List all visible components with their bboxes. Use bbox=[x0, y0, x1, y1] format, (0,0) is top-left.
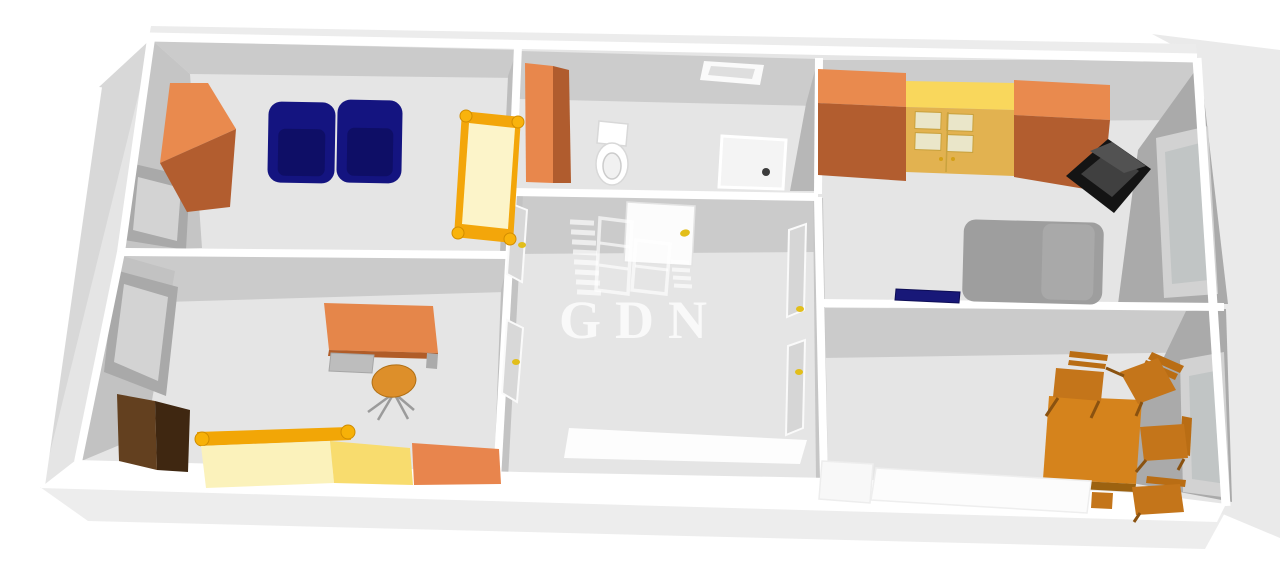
bath-cabinet-dark bbox=[553, 66, 571, 183]
wardrobe-glass-panel-2 bbox=[947, 114, 974, 132]
bedroom-bed-highlight bbox=[1041, 223, 1095, 300]
living-armchair-2-seat bbox=[347, 128, 394, 177]
wm-text: GDN bbox=[559, 290, 721, 350]
bedroom-wardrobe-yellow-top bbox=[906, 81, 1014, 110]
shower-tray bbox=[719, 136, 786, 189]
hall-left-door-1-handle bbox=[518, 242, 526, 248]
hall-left-door-2-handle bbox=[512, 359, 520, 365]
wall-cap-divider-bedroom-dining bbox=[820, 303, 1224, 307]
dining-table-top bbox=[1043, 396, 1142, 484]
living-bed-post-1 bbox=[460, 110, 472, 122]
dining-chair-east2-seat bbox=[1140, 424, 1188, 461]
toilet-tank bbox=[597, 121, 628, 146]
bedroom-wardrobe-right-light bbox=[1014, 80, 1110, 120]
kitchen-counter-cube bbox=[819, 461, 873, 503]
wall-cap-hall-north bbox=[513, 192, 818, 197]
wall-cap-divider-living-kid bbox=[121, 252, 511, 255]
floorplan-3d-render: GDN GDN bbox=[0, 0, 1280, 578]
kid-bed-mattress bbox=[201, 441, 334, 488]
wardrobe-glass-panel-1 bbox=[915, 112, 942, 130]
dining-chair-north-seat bbox=[1053, 368, 1104, 401]
wardrobe-glass-panel-4 bbox=[947, 135, 974, 153]
dining-chair-south-seat bbox=[1132, 484, 1184, 515]
dining-stool bbox=[1091, 492, 1113, 509]
kid-bed-post-left bbox=[195, 432, 209, 446]
dining-north-wall-face bbox=[822, 308, 1224, 358]
wardrobe-handle-1 bbox=[939, 157, 943, 161]
living-armchair-1-seat bbox=[278, 129, 326, 177]
shower-drain bbox=[762, 168, 770, 176]
hall-right-door-1 bbox=[787, 224, 806, 317]
bedroom-wardrobe-left-light bbox=[818, 69, 906, 107]
kid-bed-blanket bbox=[330, 441, 413, 485]
kid-cabinet bbox=[412, 443, 501, 485]
hall-right-door-2 bbox=[786, 340, 805, 435]
kid-wardrobe-front bbox=[155, 401, 190, 472]
kid-wardrobe-light bbox=[117, 394, 157, 470]
wardrobe-glass-panel-3 bbox=[915, 133, 942, 151]
living-bed-mattress bbox=[462, 123, 515, 229]
wardrobe-handle-2 bbox=[951, 157, 955, 161]
kid-desk-drawer bbox=[329, 353, 374, 373]
hall-right-door-1-handle bbox=[796, 306, 804, 312]
living-bed-post-2 bbox=[512, 116, 524, 128]
toilet-bowl-inner bbox=[603, 153, 621, 179]
living-bed-post-3 bbox=[452, 227, 464, 239]
bedroom-wardrobe-left-front bbox=[818, 103, 906, 181]
floorplan-scene-svg: GDN bbox=[0, 0, 1280, 578]
bath-cabinet-light bbox=[525, 63, 553, 183]
hall-right-door-2-handle bbox=[795, 369, 803, 375]
kid-bed-post-right bbox=[341, 425, 355, 439]
kid-desk-leg bbox=[426, 353, 438, 369]
living-bed-post-4 bbox=[504, 233, 516, 245]
kid-desk-top bbox=[324, 303, 438, 353]
bedroom-bench bbox=[895, 289, 960, 303]
